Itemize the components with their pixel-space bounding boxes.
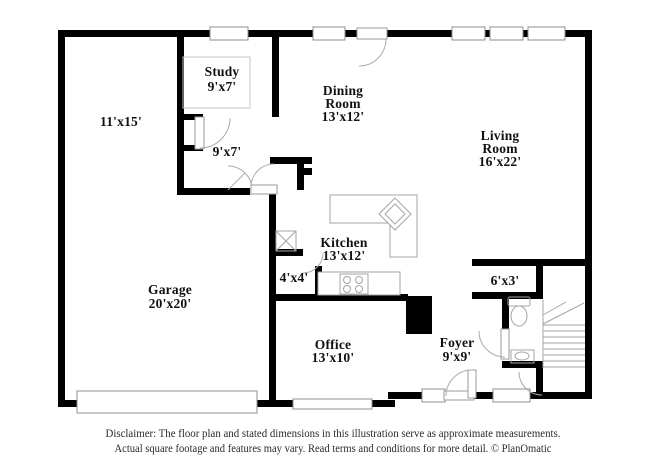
label-living-dims: 16'x22' [479, 154, 522, 169]
disclaimer-line-1: Disclaimer: The floor plan and stated di… [106, 428, 561, 440]
label-hall-dims: 9'x7' [213, 144, 242, 159]
wall-closet4x4-top [276, 249, 303, 256]
rear-door-swing-arc [359, 39, 386, 66]
wall-exterior-left [58, 30, 65, 407]
label-kitchen-dims: 13'x12' [323, 248, 366, 263]
label-study-name: Study [205, 64, 240, 79]
window-top-4 [490, 27, 523, 40]
label-study-dims: 9'x7' [208, 79, 237, 94]
disclaimer-line-2: Actual square footage and features may v… [115, 443, 552, 455]
floor-plan-drawing: 11'x15' Study 9'x7' 9'x7' Dining Room 13… [0, 0, 650, 473]
label-office-dims: 13'x10' [312, 350, 355, 365]
window-office [293, 399, 372, 409]
wall-kitchen-entry-top [270, 157, 312, 164]
fixtures [183, 57, 585, 368]
label-foyer-dims: 9'x9' [443, 349, 472, 364]
window-bottom-2 [493, 389, 530, 402]
window-top-5 [528, 27, 565, 40]
staircase [543, 300, 585, 368]
rear-door-leaf [357, 28, 387, 39]
window-top-2 [313, 27, 345, 40]
disclaimer: Disclaimer: The floor plan and stated di… [106, 428, 561, 455]
wall-exterior-right [585, 30, 592, 399]
wall-closet6x3-right [536, 259, 543, 299]
room-labels: 11'x15' Study 9'x7' 9'x7' Dining Room 13… [100, 64, 521, 365]
label-garage-name: Garage [148, 282, 192, 297]
label-closet4x4-dims: 4'x4' [280, 270, 309, 285]
wall-study-dining [272, 37, 279, 117]
wall-bathroom-bottom [502, 361, 543, 368]
garage-door [77, 391, 257, 413]
kitchen-door-opening [251, 185, 277, 194]
wall-exterior-bottom-right [388, 392, 592, 399]
hall-door-leaf [195, 117, 204, 149]
window-bottom-1 [422, 389, 445, 402]
window-top-3 [452, 27, 485, 40]
kitchen-counter [318, 272, 400, 295]
label-garage-dims: 20'x20' [149, 296, 192, 311]
wall-kitchen-entry-return [304, 168, 312, 175]
label-dining-dims: 13'x12' [322, 109, 365, 124]
label-closet6x3-dims: 6'x3' [491, 273, 520, 288]
front-door-leaf [468, 370, 476, 398]
floor-plan-page: 11'x15' Study 9'x7' 9'x7' Dining Room 13… [0, 0, 650, 473]
water-heater [276, 231, 296, 251]
wall-kitchen-entry-side [297, 164, 304, 190]
label-foyer-name: Foyer [440, 335, 475, 350]
toilet [508, 297, 530, 326]
kitchen-door-swing-arc [251, 164, 274, 187]
window-top-1 [210, 27, 248, 40]
label-storage-dims: 11'x15' [100, 114, 142, 129]
office-door-leaf-line [228, 173, 245, 190]
wall-hall-bottom [177, 188, 250, 195]
wall-closet6x3-top [472, 259, 585, 266]
fireplace-chimney-mass [406, 296, 432, 334]
bathroom-door-leaf [501, 329, 509, 359]
